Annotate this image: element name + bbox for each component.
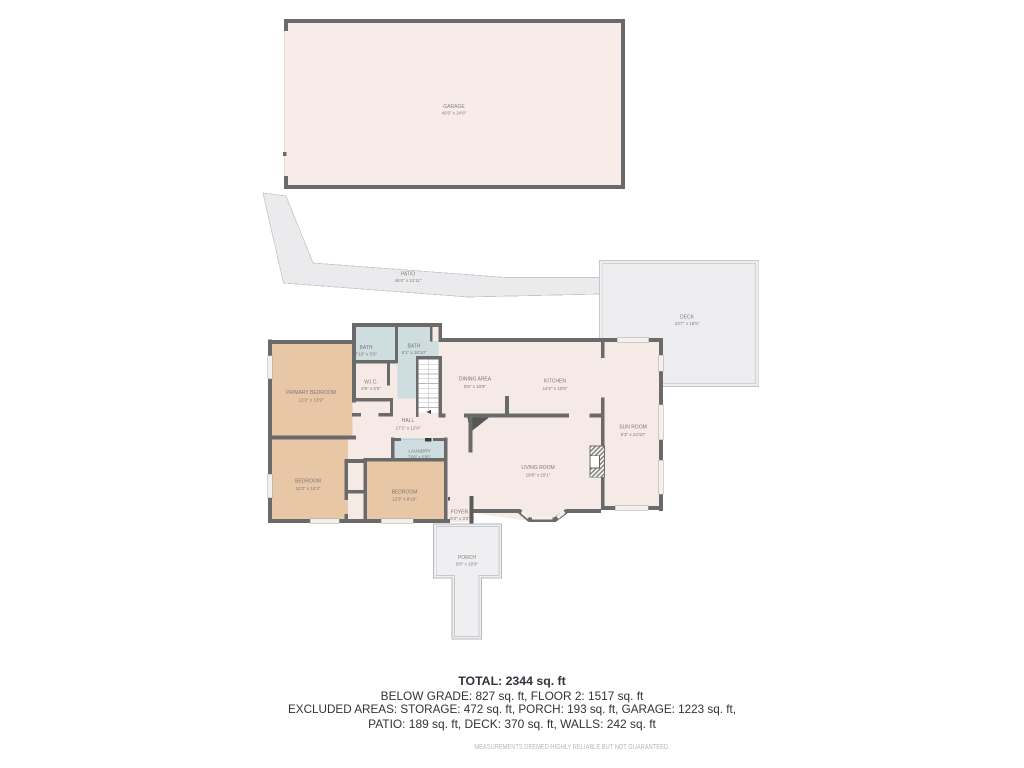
svg-text:49'5" x 24'8": 49'5" x 24'8" <box>442 111 467 116</box>
svg-text:LIVING ROOM: LIVING ROOM <box>521 465 554 471</box>
svg-text:BATH: BATH <box>408 343 421 349</box>
svg-text:BEDROOM: BEDROOM <box>295 479 321 485</box>
svg-text:12'3" x 8'10": 12'3" x 8'10" <box>392 497 417 502</box>
svg-text:8'3" x 24'10": 8'3" x 24'10" <box>621 432 646 437</box>
svg-text:KITCHEN: KITCHEN <box>544 379 566 385</box>
svg-text:DINING AREA: DINING AREA <box>459 377 492 383</box>
svg-text:23'7" x 18'5": 23'7" x 18'5" <box>675 321 700 326</box>
svg-text:HALL: HALL <box>402 418 415 424</box>
svg-text:14'2" x 10'9": 14'2" x 10'9" <box>543 386 568 391</box>
svg-text:19'8" x 15'1": 19'8" x 15'1" <box>526 472 551 477</box>
svg-text:4'9" x 5'0": 4'9" x 5'0" <box>361 386 381 391</box>
svg-text:LAUNDRY: LAUNDRY <box>408 449 431 454</box>
svg-text:9'8" x 18'9": 9'8" x 18'9" <box>456 562 479 567</box>
svg-text:7'06" x 5'05": 7'06" x 5'05" <box>408 454 431 459</box>
svg-text:PORCH: PORCH <box>458 555 476 561</box>
svg-text:7'10" x 5'6": 7'10" x 5'6" <box>355 351 378 356</box>
svg-text:PATIO: PATIO <box>401 272 415 278</box>
svg-text:BATH: BATH <box>360 345 373 351</box>
svg-text:GARAGE: GARAGE <box>443 104 465 110</box>
svg-text:FOYER: FOYER <box>451 509 469 515</box>
svg-text:17'2" x 12'0": 17'2" x 12'0" <box>396 425 421 430</box>
svg-text:BEDROOM: BEDROOM <box>392 489 418 495</box>
svg-text:9'8" x 10'9": 9'8" x 10'9" <box>464 384 487 389</box>
svg-text:W.I.C.: W.I.C. <box>364 380 378 386</box>
svg-text:SUN ROOM: SUN ROOM <box>619 425 647 431</box>
svg-text:46'4" x 12'11": 46'4" x 12'11" <box>395 278 422 283</box>
svg-text:9'3" x 3'2": 9'3" x 3'2" <box>450 516 470 521</box>
svg-text:12'2" x 13'9": 12'2" x 13'9" <box>299 398 324 403</box>
svg-text:PRIMARY BEDROOM: PRIMARY BEDROOM <box>286 390 336 396</box>
svg-text:12'2" x 12'3": 12'2" x 12'3" <box>296 486 321 491</box>
svg-text:6'1" x 10'10": 6'1" x 10'10" <box>402 350 427 355</box>
svg-text:DECK: DECK <box>680 315 695 321</box>
